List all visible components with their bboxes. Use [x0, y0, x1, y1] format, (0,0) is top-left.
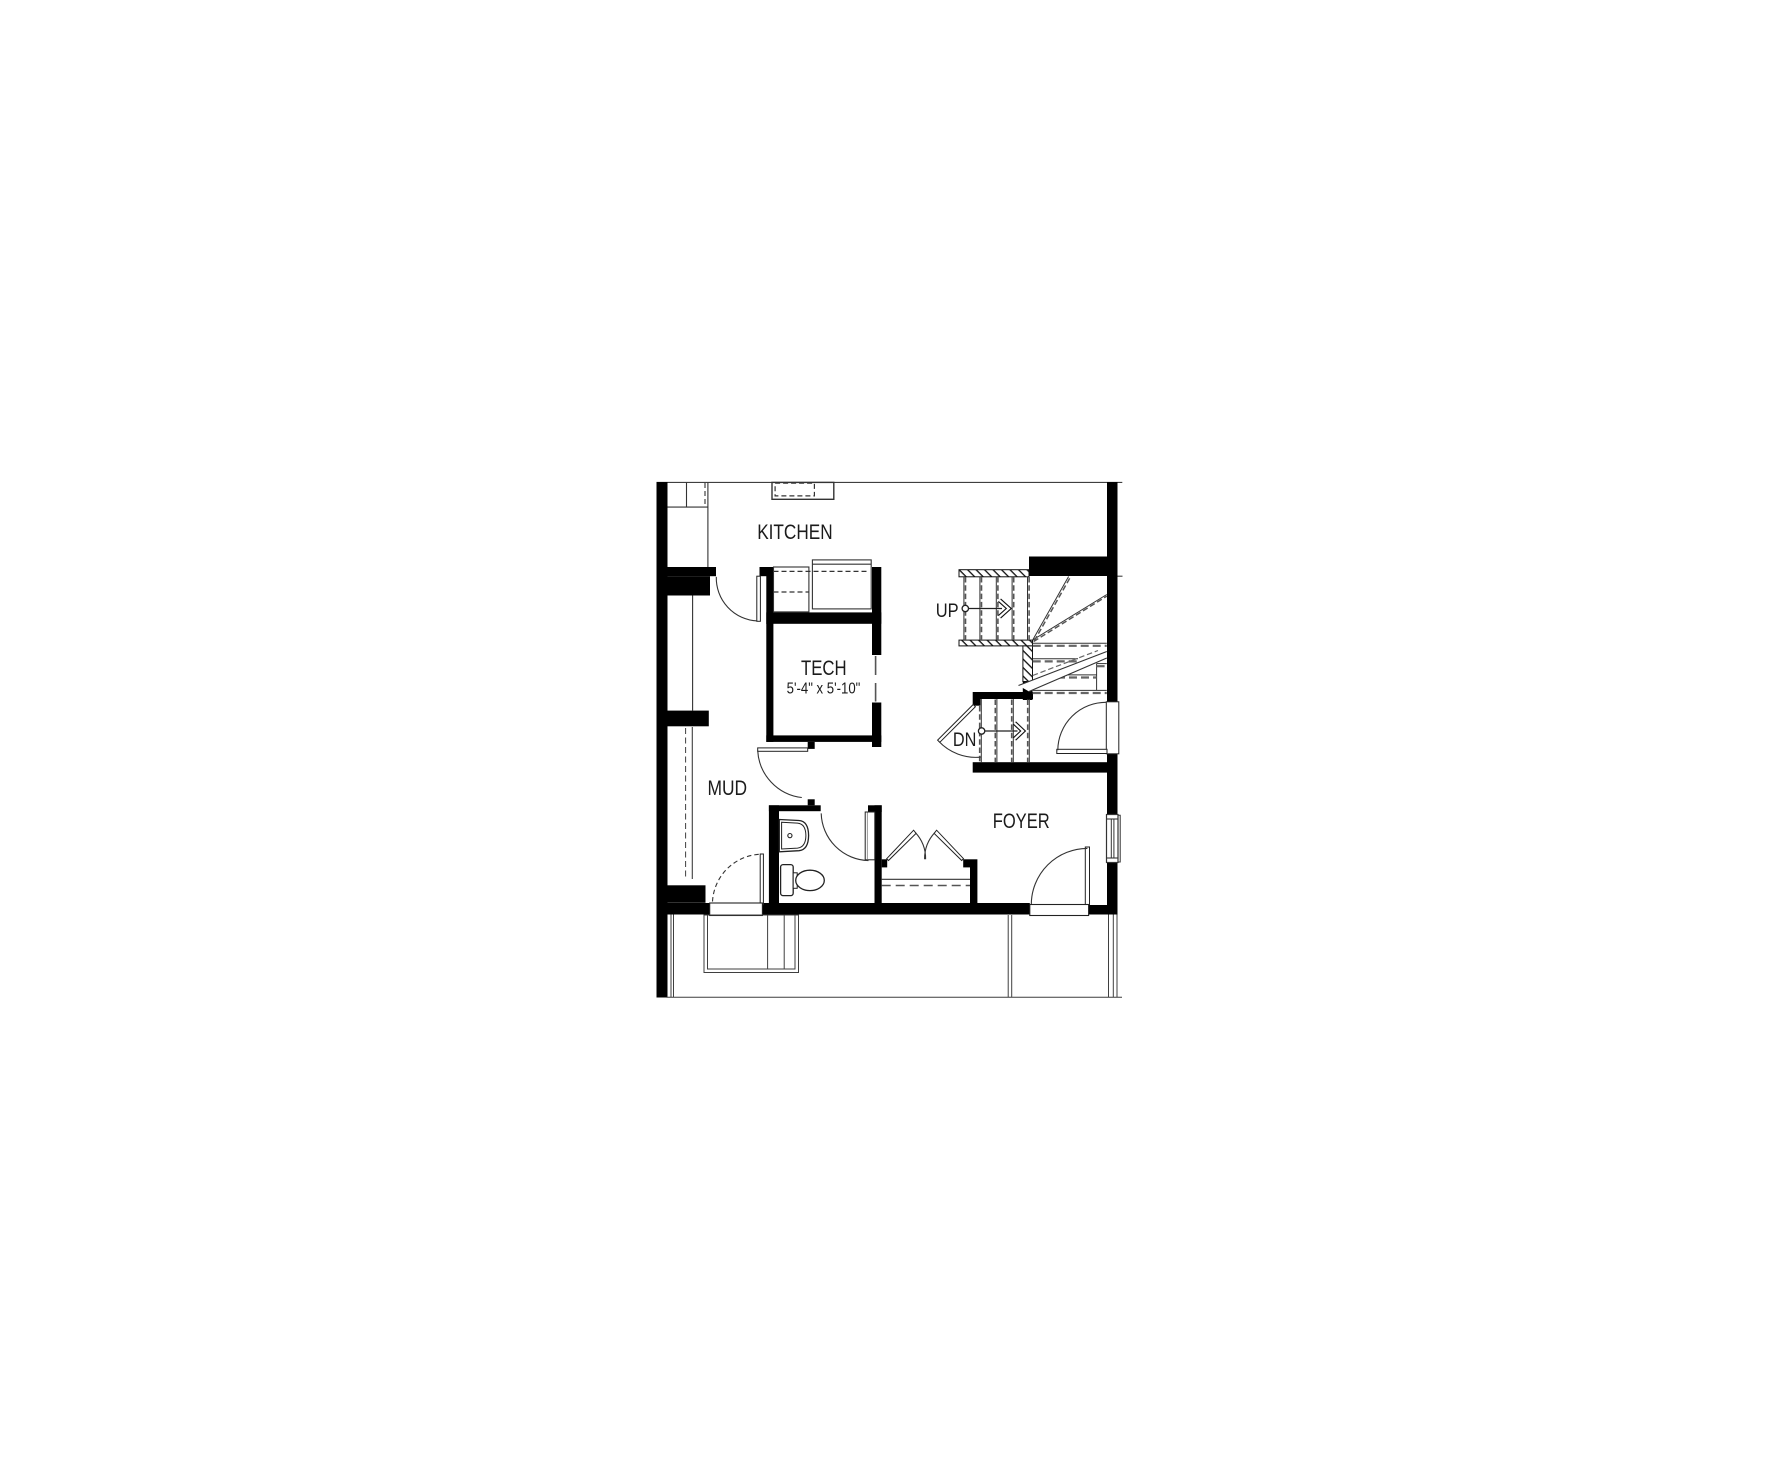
svg-text:KITCHEN: KITCHEN [757, 520, 832, 544]
svg-text:UP: UP [936, 600, 959, 622]
svg-text:FOYER: FOYER [993, 810, 1050, 834]
svg-text:MUD: MUD [707, 776, 747, 800]
svg-text:TECH: TECH [801, 657, 847, 680]
svg-text:5'-4" x 5'-10": 5'-4" x 5'-10" [787, 681, 861, 698]
svg-text:DN: DN [953, 729, 976, 751]
